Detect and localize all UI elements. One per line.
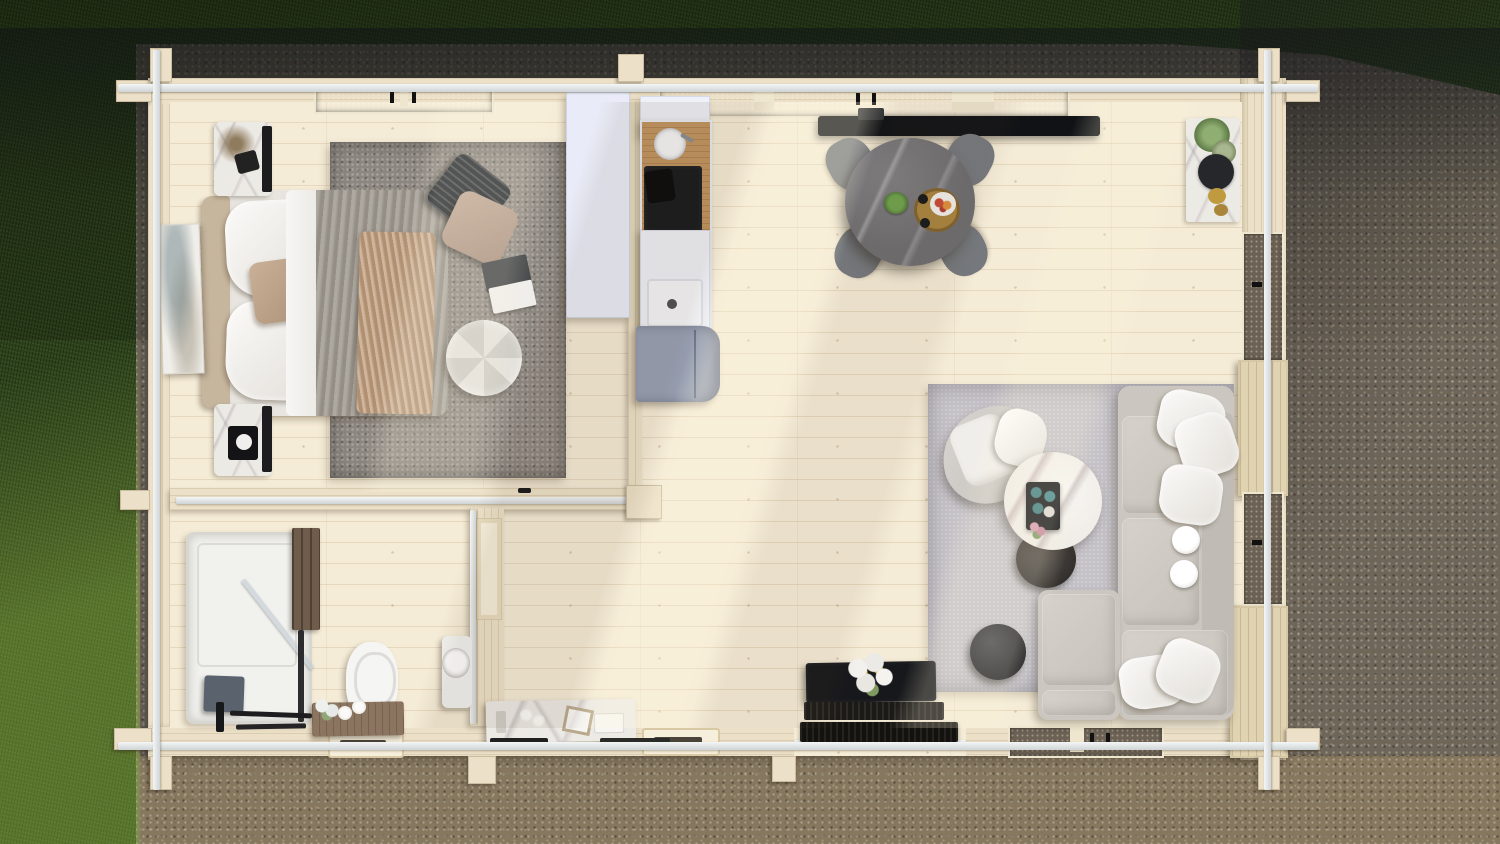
espresso-cup — [920, 218, 930, 228]
bathroom — [170, 510, 470, 726]
cap-beam-left — [153, 50, 160, 790]
console-rolls — [532, 714, 545, 727]
bathroom-door — [476, 518, 502, 620]
window-handle — [1252, 540, 1262, 545]
kitchen — [560, 90, 730, 420]
right-wall-wood-door — [1238, 360, 1288, 496]
nightstand-dish — [236, 434, 252, 450]
partition-cap — [176, 497, 634, 504]
wall-left — [148, 78, 172, 760]
bedroom-door-handle — [518, 488, 531, 493]
chaise-footpad — [1042, 690, 1116, 716]
bed — [202, 188, 448, 418]
fridge — [636, 326, 720, 402]
shower-tray-inner — [197, 543, 297, 667]
bath-radiator — [203, 675, 244, 712]
floorplan-render — [0, 0, 1500, 844]
console-box — [594, 713, 624, 734]
fruit-bowl — [930, 192, 956, 216]
tray-flowers — [1024, 518, 1050, 540]
partition-end-post — [626, 485, 662, 519]
shower-wood-panel — [292, 528, 320, 630]
lily-bouquet — [838, 648, 904, 706]
spare-rolls — [352, 700, 366, 714]
tv-bracket — [858, 108, 884, 120]
window-handle — [1252, 282, 1262, 287]
log-end-left-partition — [120, 490, 150, 510]
console-candle — [496, 711, 506, 733]
table-plant — [884, 192, 908, 214]
grass-left — [0, 0, 136, 844]
gold-bowl — [1208, 188, 1226, 204]
sofa-tray — [1172, 526, 1200, 554]
bedroom-pouf — [446, 320, 522, 396]
right-wall-window-upper — [1242, 232, 1284, 362]
corner-sideboard — [1186, 118, 1240, 222]
log-end-bath-wall — [468, 756, 496, 784]
kitchen-lower-cabinet — [640, 230, 710, 328]
nightstand-side-panel — [262, 406, 272, 472]
dining-area — [800, 100, 1120, 320]
nightstand-lower — [214, 404, 272, 476]
espresso-cup — [918, 194, 928, 204]
nightstand-side-panel — [262, 126, 272, 192]
cap-beam-bottom — [118, 742, 1318, 750]
hall-console — [486, 699, 637, 744]
nightstand-upper — [214, 122, 272, 196]
wardrobe — [566, 92, 630, 318]
log-end-kitchen-wall — [618, 54, 644, 82]
round-mirror-tray — [1198, 154, 1234, 190]
console-frame — [562, 705, 594, 736]
nightstand-decor — [234, 149, 260, 174]
cap-beam-top — [118, 84, 1318, 92]
log-end-entrance — [772, 756, 796, 782]
bed-throw-tan — [356, 231, 435, 414]
wall-artwork — [157, 223, 204, 374]
fridge-divider — [694, 330, 696, 398]
wash-basin — [442, 648, 470, 678]
sofa-tray — [1170, 560, 1198, 588]
shower-column — [216, 702, 224, 732]
cap-beam-right — [1264, 50, 1271, 790]
shower-door-rail — [298, 630, 304, 722]
chaise-cushion — [1042, 594, 1116, 686]
basin-drain — [667, 299, 677, 309]
gold-bowl — [1214, 204, 1228, 216]
living-pouf — [970, 624, 1026, 680]
doormat — [804, 702, 944, 720]
bedroom — [170, 102, 570, 488]
pan — [644, 168, 676, 204]
right-wall-window-lower — [1242, 492, 1284, 606]
doormat — [800, 722, 958, 742]
spare-rolls — [338, 706, 352, 720]
living-area — [920, 380, 1242, 728]
gravel-bottom-warm — [140, 756, 1500, 844]
